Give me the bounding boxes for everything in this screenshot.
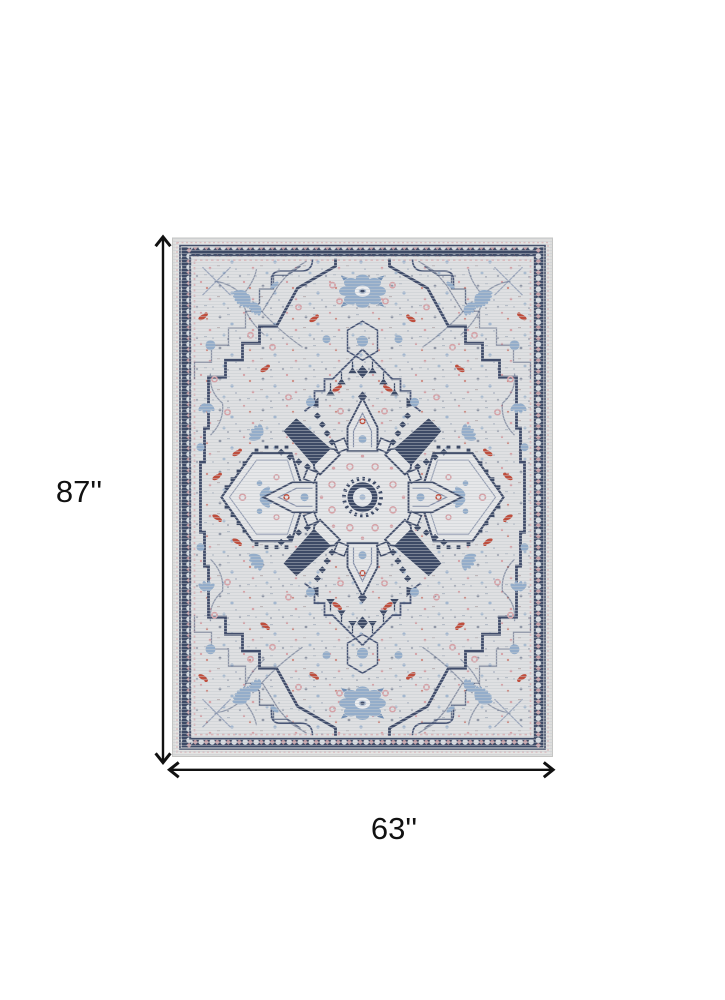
- svg-text:87'': 87'': [56, 474, 102, 509]
- svg-text:63'': 63'': [371, 811, 417, 846]
